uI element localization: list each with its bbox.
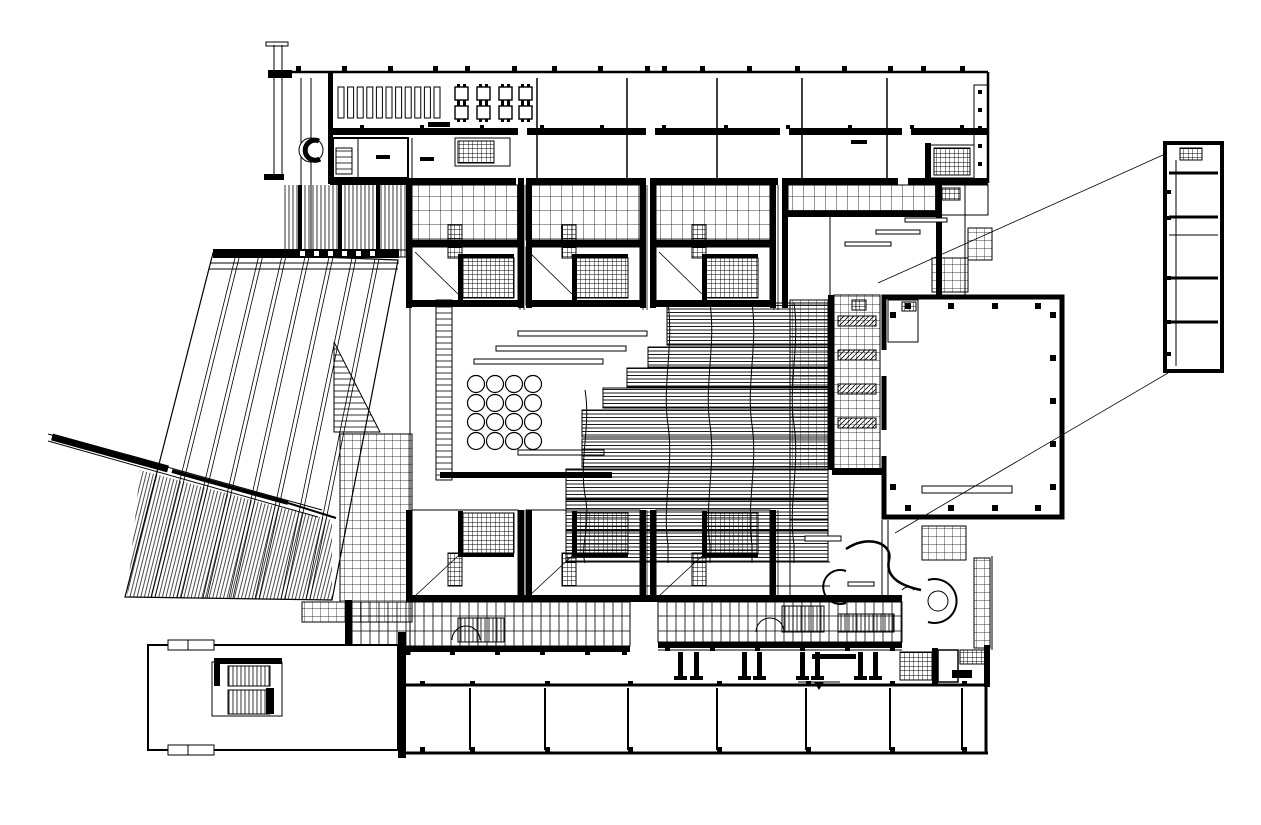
- column-marks: [495, 650, 500, 655]
- reading-tables: [463, 119, 466, 122]
- terrace-parapet: [412, 240, 518, 247]
- stair-flight: [838, 614, 894, 632]
- module-wall: [782, 178, 788, 308]
- column-marks: [342, 66, 347, 71]
- column-marks: [645, 66, 650, 71]
- column-marks: [662, 125, 666, 129]
- bookshelf-stacks: [396, 87, 402, 118]
- column-marks: [1167, 320, 1171, 324]
- module-wall: [640, 178, 646, 308]
- column-marks: [978, 162, 982, 166]
- wall-cap: [264, 174, 284, 180]
- ridge-tooth: [328, 251, 333, 256]
- column-marks: [598, 66, 603, 71]
- reading-tables: [457, 103, 460, 106]
- column-marks: [420, 125, 424, 129]
- column-marks: [978, 108, 982, 112]
- column-marks: [1167, 352, 1171, 356]
- bookshelf-stacks: [415, 87, 421, 118]
- wc-stalls: [838, 418, 876, 428]
- stair-flight: [782, 606, 824, 632]
- hall-columns: [948, 505, 954, 511]
- round-tables: [487, 376, 504, 393]
- hall-columns: [1035, 505, 1041, 511]
- shaft: [336, 148, 352, 174]
- wc-wall: [458, 511, 463, 557]
- column-marks: [717, 747, 722, 752]
- reading-tables: [457, 84, 460, 87]
- paved-patch: [968, 228, 992, 260]
- reading-tables: [527, 100, 530, 103]
- reading-tables: [521, 119, 524, 122]
- column-marks: [628, 681, 633, 686]
- parapet-wall: [412, 595, 572, 602]
- reading-tables: [485, 100, 488, 103]
- bookshelf-stacks: [434, 87, 440, 118]
- reading-tables: [457, 100, 460, 103]
- wall-stub: [753, 676, 766, 680]
- module-south-wall: [526, 300, 640, 307]
- reading-tables: [477, 106, 490, 119]
- column-marks: [585, 650, 590, 655]
- column-marks: [433, 66, 438, 71]
- column-marks: [717, 681, 722, 686]
- column-marks: [1167, 216, 1171, 220]
- reading-tables: [507, 100, 510, 103]
- wc-wall: [572, 511, 577, 557]
- door-opening: [780, 128, 789, 135]
- column-marks: [628, 747, 633, 752]
- column-marks: [296, 66, 301, 71]
- column-marks: [960, 125, 964, 129]
- enlarged-detail: [1165, 143, 1222, 371]
- terrace-parapet: [526, 240, 640, 247]
- stair-flight: [1180, 148, 1202, 160]
- column-marks: [890, 747, 895, 752]
- column-marks: [848, 125, 852, 129]
- reading-tables: [455, 106, 468, 119]
- wall-stub: [858, 652, 863, 678]
- stair-wall: [220, 658, 282, 664]
- reading-tables: [519, 106, 532, 119]
- bench: [905, 218, 947, 222]
- column-marks: [700, 66, 705, 71]
- reading-tables: [485, 103, 488, 106]
- ridge-tooth: [314, 251, 319, 256]
- reading-tables: [479, 103, 482, 106]
- wc-wall: [706, 254, 758, 258]
- reading-tables: [455, 87, 468, 100]
- paved-plaza: [340, 434, 412, 602]
- bench: [518, 331, 647, 336]
- reading-tables: [501, 100, 504, 103]
- wc-room: [576, 258, 628, 298]
- mullion: [376, 185, 380, 257]
- wall-cap: [266, 42, 288, 46]
- wall-stub: [811, 676, 824, 680]
- column-marks: [910, 125, 914, 129]
- illegible-label: [952, 670, 972, 678]
- column-marks: [470, 681, 475, 686]
- module-wall: [518, 178, 524, 308]
- hall-columns: [992, 505, 998, 511]
- column-marks: [962, 681, 967, 686]
- round-tables: [525, 414, 542, 431]
- wall-stub: [873, 652, 878, 678]
- illegible-label: [420, 157, 434, 161]
- duct-shaft: [562, 225, 576, 258]
- module-wall: [526, 510, 532, 602]
- stair-flight: [458, 618, 504, 642]
- column-marks: [360, 125, 364, 129]
- stair-flight: [228, 690, 270, 714]
- column-marks: [540, 650, 545, 655]
- door-opening: [881, 350, 887, 376]
- hall-columns: [948, 303, 954, 309]
- wall-stub: [690, 676, 703, 680]
- round-tables: [468, 376, 485, 393]
- column-marks: [978, 144, 982, 148]
- wc-room: [706, 513, 758, 553]
- terrace-deck: [526, 185, 640, 240]
- door-leaf: [188, 640, 214, 650]
- shaft: [852, 300, 866, 310]
- door-leaf: [168, 745, 188, 755]
- hall-columns: [1050, 355, 1056, 361]
- bookshelf-stacks: [386, 87, 392, 118]
- column-marks: [806, 747, 811, 752]
- wc-wall: [462, 553, 514, 557]
- bench: [845, 242, 891, 246]
- column-marks: [470, 747, 475, 752]
- cad-canvas: [0, 0, 1261, 825]
- louver-deck: [283, 185, 412, 257]
- reading-tables: [499, 106, 512, 119]
- reading-tables: [507, 103, 510, 106]
- wall-segment: [984, 645, 990, 687]
- module-wall: [650, 510, 656, 602]
- terrace-parapet: [788, 211, 936, 217]
- door-leaf: [188, 745, 214, 755]
- stair-flight: [458, 141, 494, 163]
- column-marks: [545, 747, 550, 752]
- hall-west-wall: [828, 295, 834, 470]
- reading-tables: [457, 119, 460, 122]
- wc-room: [462, 258, 514, 298]
- column-marks: [962, 747, 967, 752]
- column-marks: [450, 650, 455, 655]
- column-marks: [978, 90, 982, 94]
- reading-tables: [499, 87, 512, 100]
- reading-tables: [527, 103, 530, 106]
- bookshelf-stacks: [376, 87, 382, 118]
- module-wall: [770, 178, 776, 308]
- hall-columns: [992, 303, 998, 309]
- hall-columns: [1050, 312, 1056, 318]
- entrance-label: [812, 654, 856, 659]
- terrace-deck: [788, 185, 936, 211]
- bookshelf-stacks: [348, 87, 354, 118]
- bookshelf-stacks: [367, 87, 373, 118]
- reading-tables: [463, 84, 466, 87]
- wc-stalls: [838, 384, 876, 394]
- column-marks: [622, 650, 627, 655]
- reading-tables: [507, 84, 510, 87]
- column-marks: [795, 66, 800, 71]
- column-marks: [480, 125, 484, 129]
- module-wall: [770, 510, 776, 602]
- column-marks: [921, 66, 926, 71]
- ridge-tooth: [370, 251, 375, 256]
- module-wall: [640, 510, 646, 602]
- column-marks: [960, 66, 965, 71]
- reading-tables: [519, 87, 532, 100]
- round-tables: [506, 376, 523, 393]
- wall-stub: [674, 676, 687, 680]
- reading-tables: [527, 119, 530, 122]
- reading-tables: [507, 119, 510, 122]
- reading-tables: [527, 84, 530, 87]
- paved-patch: [922, 526, 966, 560]
- module-wall: [406, 178, 412, 308]
- module-wall: [406, 510, 412, 602]
- ramp-band: [790, 300, 828, 470]
- round-tables: [525, 395, 542, 412]
- pergola-band: [436, 300, 452, 480]
- wall-stub: [800, 652, 805, 678]
- paved-patch: [932, 258, 968, 292]
- bench: [876, 230, 920, 234]
- mullion: [298, 185, 302, 257]
- reading-tables: [521, 103, 524, 106]
- wc-stalls: [838, 350, 876, 360]
- terrace-parapet: [656, 240, 770, 247]
- auditorium-seating: [566, 469, 828, 499]
- wall-stub: [742, 652, 747, 678]
- wc-room: [462, 513, 514, 553]
- stair-flight: [960, 650, 986, 664]
- wc-wall: [576, 254, 628, 258]
- reading-tables: [485, 119, 488, 122]
- reading-tables: [463, 100, 466, 103]
- wall-segment: [658, 642, 902, 648]
- column-marks: [786, 125, 790, 129]
- reading-tables: [477, 87, 490, 100]
- wall-stub: [694, 652, 699, 678]
- module-south-wall: [412, 300, 518, 307]
- garden-pond: [928, 591, 948, 611]
- reading-tables: [501, 84, 504, 87]
- wall-stub: [869, 676, 882, 680]
- reading-tables: [479, 100, 482, 103]
- party-wall: [398, 632, 406, 758]
- column-marks: [888, 66, 893, 71]
- bookshelf-stacks: [405, 87, 411, 118]
- stair-wall: [214, 658, 220, 686]
- door-opening: [898, 178, 908, 185]
- top-wing-south-wall: [330, 178, 988, 185]
- column-marks: [420, 747, 425, 752]
- round-tables: [468, 433, 485, 450]
- illegible-label: [851, 140, 867, 144]
- bookshelf-stacks: [424, 87, 430, 118]
- service-strip: [974, 558, 990, 648]
- reading-tables: [501, 119, 504, 122]
- round-tables: [468, 414, 485, 431]
- bookshelf-stacks: [338, 87, 344, 118]
- stair-wall: [266, 688, 274, 714]
- duct-shaft: [692, 225, 706, 258]
- door-opening: [881, 430, 887, 456]
- stair-flight: [900, 652, 932, 680]
- reading-tables: [521, 100, 524, 103]
- terrace-deck: [412, 185, 518, 240]
- wall-segment: [932, 648, 938, 684]
- door-opening: [646, 128, 655, 135]
- wc-wall: [576, 553, 628, 557]
- door-opening: [902, 128, 911, 135]
- reading-tables: [501, 103, 504, 106]
- stair-flight: [942, 188, 960, 200]
- wall-stub: [738, 676, 751, 680]
- round-tables: [506, 433, 523, 450]
- bench: [474, 359, 603, 364]
- wall-segment: [832, 468, 882, 475]
- round-tables: [487, 395, 504, 412]
- stair-flight: [934, 148, 970, 175]
- column-marks: [552, 66, 557, 71]
- corridor-wall: [330, 128, 988, 135]
- ridge-tooth: [356, 251, 361, 256]
- hall-columns: [1035, 303, 1041, 309]
- stair-flight: [228, 666, 270, 686]
- reading-tables: [463, 103, 466, 106]
- hall-columns: [890, 312, 896, 318]
- bookshelf-stacks: [357, 87, 363, 118]
- wc-room: [706, 258, 758, 298]
- reading-tables: [521, 84, 524, 87]
- column-marks: [1167, 276, 1171, 280]
- wc-stalls: [838, 316, 876, 326]
- round-tables: [487, 433, 504, 450]
- wall-stub: [796, 676, 809, 680]
- bench: [805, 536, 841, 541]
- ridge-tooth: [300, 251, 305, 256]
- round-tables: [468, 395, 485, 412]
- hall-columns: [1050, 484, 1056, 490]
- column-marks: [890, 681, 895, 686]
- bench: [848, 582, 874, 586]
- hall-columns: [1050, 398, 1056, 404]
- shaft: [902, 302, 916, 311]
- wc-wall: [462, 254, 514, 258]
- column-marks: [512, 66, 517, 71]
- column-marks: [600, 125, 604, 129]
- floor-plan-svg: [0, 0, 1261, 825]
- column-marks: [747, 66, 752, 71]
- round-tables: [525, 433, 542, 450]
- wc-wall: [702, 511, 707, 557]
- mullion: [338, 185, 342, 257]
- reading-tables: [479, 119, 482, 122]
- bench: [496, 346, 626, 351]
- module-wall: [650, 178, 656, 308]
- column-marks: [1167, 190, 1171, 194]
- wall-stub: [678, 652, 683, 678]
- round-tables: [487, 414, 504, 431]
- column-marks: [842, 66, 847, 71]
- duct-shaft: [448, 225, 462, 258]
- wall-stub: [854, 676, 867, 680]
- column-marks: [465, 66, 470, 71]
- round-tables: [506, 395, 523, 412]
- wc-wall: [706, 553, 758, 557]
- wall-segment: [268, 70, 292, 78]
- reading-tables: [485, 84, 488, 87]
- reading-tables: [479, 84, 482, 87]
- ridge-tooth: [342, 251, 347, 256]
- ramp-beam: [52, 437, 168, 469]
- wc-room: [576, 513, 628, 553]
- round-tables: [506, 414, 523, 431]
- column-marks: [388, 66, 393, 71]
- column-marks: [540, 125, 544, 129]
- door-opening: [518, 128, 527, 135]
- terrace-deck: [656, 185, 770, 240]
- multipurpose-hall: [884, 297, 1062, 517]
- duct-shaft: [562, 553, 576, 586]
- illegible-label: [428, 122, 450, 127]
- column-marks: [545, 681, 550, 686]
- illegible-label: [376, 155, 390, 159]
- round-tables: [525, 376, 542, 393]
- door-leaf: [168, 640, 188, 650]
- module-wall: [518, 510, 524, 602]
- column-marks: [420, 681, 425, 686]
- stage-strip: [922, 486, 1012, 493]
- duct-shaft: [448, 553, 462, 586]
- column-marks: [662, 66, 667, 71]
- hall-columns: [890, 484, 896, 490]
- hall-columns: [905, 505, 911, 511]
- wall-stub: [757, 652, 762, 678]
- column-marks: [724, 125, 728, 129]
- parapet-wall: [566, 595, 902, 602]
- duct-shaft: [692, 553, 706, 586]
